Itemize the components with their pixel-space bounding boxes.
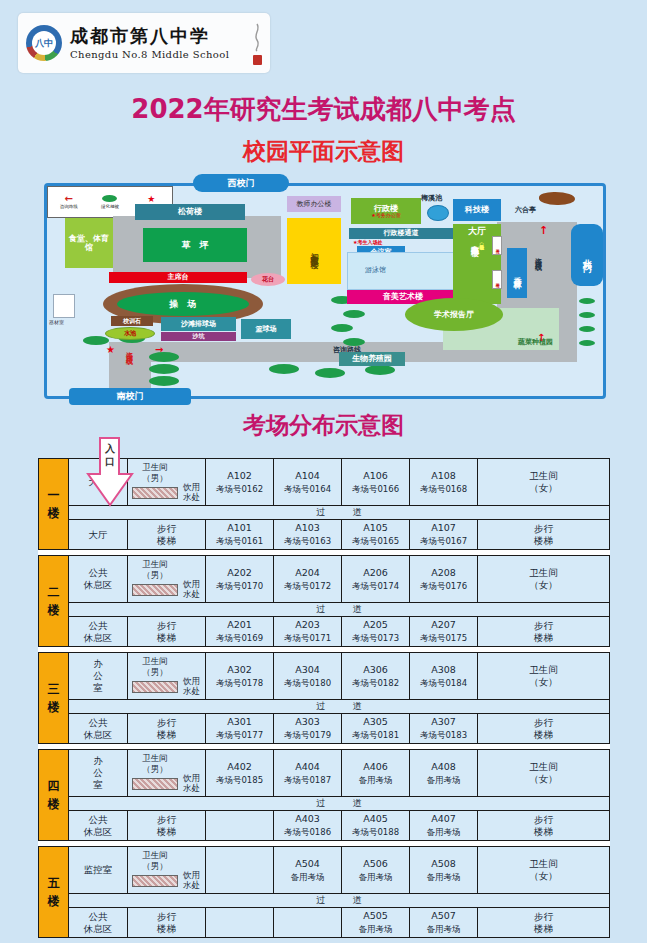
room-code: A107 <box>431 522 456 534</box>
toilet-male-hatch <box>132 584 178 596</box>
exam-room: A308考场号0184 <box>409 653 477 699</box>
tree-icon <box>315 368 345 378</box>
corridor: 过 道 <box>69 602 609 616</box>
stairs-cell: 步行 楼梯 <box>477 519 609 549</box>
room-code: A105 <box>363 522 388 534</box>
toilet-female-cell: 卫生间 （女） <box>477 847 609 893</box>
room-number: 考场号0175 <box>420 633 467 644</box>
room-number: 考场号0169 <box>216 633 263 644</box>
room-number: 备用考场 <box>427 872 461 883</box>
west-gate: 西校门 <box>193 174 289 192</box>
room-number: 考场号0173 <box>352 633 399 644</box>
facility-cell: 卫生间 （男） 饮用 水处 <box>127 459 205 505</box>
room-number: 考场号0162 <box>216 484 263 495</box>
camphor-grove: 香樟林 <box>507 248 527 298</box>
exam-room: A507备用考场 <box>409 907 477 937</box>
calligraphy-seal <box>252 22 262 65</box>
legend-route: ← 咨询路线 <box>48 187 89 217</box>
exam-room: A201考场号0169 <box>205 616 273 646</box>
tree-icon <box>579 326 595 332</box>
room-code: A206 <box>363 567 388 579</box>
swimming-pool-label: 游泳馆 <box>365 266 386 274</box>
meixi-pond-label: 梅溪池 <box>421 194 442 202</box>
room-code: A103 <box>295 522 320 534</box>
room-number: 考场号0183 <box>420 730 467 741</box>
main-title: 2022年研究生考试成都八中考点 <box>0 92 647 127</box>
exam-room: A102考场号0162 <box>205 459 273 505</box>
room-number: 备用考场 <box>359 872 393 883</box>
senior-teaching-building: 大厅 高中教学楼 （研究生考场） 考生入口 考生出口 <box>453 224 501 304</box>
exam-room: A104考场号0164 <box>273 459 341 505</box>
tree-icon <box>579 312 595 318</box>
rooms-board: 一 楼 大厅 卫生间 （男） 饮用 水处 A102考场号0162 A104考场号… <box>38 458 610 938</box>
room-number: 备用考场 <box>291 872 325 883</box>
room-code: A505 <box>363 910 388 922</box>
legend-greenery-label: 绿化植被 <box>101 204 119 209</box>
exam-room: A408备用考场 <box>409 750 477 796</box>
room-number: 考场号0182 <box>352 678 399 689</box>
school-name-cn: 成都市第八中学 <box>70 26 250 46</box>
exam-room: A407备用考场 <box>409 810 477 840</box>
tree-icon <box>149 364 179 374</box>
exam-room: A203考场号0171 <box>273 616 341 646</box>
exam-room: A402考场号0185 <box>205 750 273 796</box>
toilet-male-label: 卫生间 （男） <box>142 462 168 483</box>
toilet-male-hatch <box>132 875 178 887</box>
exam-room: A302考场号0178 <box>205 653 273 699</box>
room-number: 考场号0187 <box>284 775 331 786</box>
north-gate: 北校门 <box>571 224 603 286</box>
floor-label: 一 楼 <box>39 459 69 549</box>
room-code: A205 <box>363 619 388 631</box>
exam-room-empty <box>205 847 273 893</box>
exam-room: A107考场号0167 <box>409 519 477 549</box>
water-label: 饮用 水处 <box>183 773 200 794</box>
room-code: A203 <box>295 619 320 631</box>
room-number: 备用考场 <box>427 827 461 838</box>
tree-icon <box>149 376 179 386</box>
exam-room: A304考场号0180 <box>273 653 341 699</box>
playground: 操 场 <box>117 292 249 316</box>
stairs-cell: 步行 楼梯 <box>477 907 609 937</box>
route-arrow-icon: ← <box>64 196 72 202</box>
exam-room: A202考场号0170 <box>205 556 273 602</box>
room-number: 考场号0165 <box>352 536 399 547</box>
room-code: A104 <box>295 470 320 482</box>
exam-room: A406备用考场 <box>341 750 409 796</box>
school-name-en: Chengdu No.8 Middle School <box>70 49 250 60</box>
exam-room: A508备用考场 <box>409 847 477 893</box>
room-code: A405 <box>363 813 388 825</box>
entrance-arrow: 入 口 <box>86 437 134 507</box>
room-code: A302 <box>227 664 252 676</box>
legend-route-label: 咨询路线 <box>60 204 78 209</box>
route-arrow-up-icon: ↑ <box>539 224 548 237</box>
admin-building-note: ★考务办公室 <box>371 213 400 219</box>
basketball-court: 篮球场 <box>241 319 291 339</box>
room-code: A106 <box>363 470 388 482</box>
equipment-room-icon <box>53 294 75 318</box>
corridor: 过 道 <box>69 893 609 907</box>
south-gate: 南校门 <box>69 388 191 405</box>
exam-room: A505备用考场 <box>341 907 409 937</box>
liuhe-pavilion-label: 六合亭 <box>515 206 536 214</box>
room-number: 考场号0179 <box>284 730 331 741</box>
area-cell: 监控室 <box>69 847 127 893</box>
legend-greenery: 绿化植被 <box>89 187 130 217</box>
exam-room: A106考场号0166 <box>341 459 409 505</box>
stairs-cell: 步行 楼梯 <box>477 810 609 840</box>
stairs-cell: 步行 楼梯 <box>127 616 205 646</box>
room-code: A305 <box>363 716 388 728</box>
facility-cell: 卫生间 （男） 饮用 水处 <box>127 556 205 602</box>
toilet-male-label: 卫生间 （男） <box>142 753 168 774</box>
area-cell: 公共 休息区 <box>69 810 127 840</box>
beach-volleyball-court: 沙滩排球场 <box>161 317 236 331</box>
room-code: A207 <box>431 619 456 631</box>
exam-room: A204考场号0172 <box>273 556 341 602</box>
room-code: A102 <box>227 470 252 482</box>
star-icon: ★ <box>147 195 155 203</box>
exam-room: A506备用考场 <box>341 847 409 893</box>
equipment-room-label: 器材室 <box>49 320 64 326</box>
info-desk-star-icon: ★ <box>106 344 115 355</box>
exam-room-empty <box>205 907 273 937</box>
room-number: 备用考场 <box>359 775 393 786</box>
room-code: A303 <box>295 716 320 728</box>
route-label-south: 咨询路线 <box>125 346 133 354</box>
exam-room: A108考场号0168 <box>409 459 477 505</box>
toilet-female-cell: 卫生间 （女） <box>477 556 609 602</box>
room-code: A301 <box>227 716 252 728</box>
toilet-female-cell: 卫生间 （女） <box>477 653 609 699</box>
admin-building: 行政楼 ★考务办公室 <box>351 198 421 224</box>
room-code: A306 <box>363 664 388 676</box>
stairs-cell: 步行 楼梯 <box>127 907 205 937</box>
area-cell: 公共 休息区 <box>69 556 127 602</box>
tree-icon <box>149 352 179 362</box>
room-number: 考场号0188 <box>352 827 399 838</box>
tree-icon <box>343 338 365 346</box>
room-code: A204 <box>295 567 320 579</box>
entrance-label: 入 口 <box>86 442 134 468</box>
teacher-office-building: 教师办公楼 <box>287 196 341 212</box>
room-number: 考场号0164 <box>284 484 331 495</box>
room-code: A407 <box>431 813 456 825</box>
room-number: 考场号0167 <box>420 536 467 547</box>
exam-room: A205考场号0173 <box>341 616 409 646</box>
exam-room: A303考场号0179 <box>273 713 341 743</box>
podium: 主席台 <box>109 272 247 283</box>
floor-block-5: 五 楼 监控室 卫生间 （男） 饮用 水处 A504备用考场 A506备用考场 … <box>38 846 610 938</box>
admin-passage: 行政楼通道 <box>349 228 453 239</box>
exam-room: A405考场号0188 <box>341 810 409 840</box>
area-cell: 公共 休息区 <box>69 907 127 937</box>
room-code: A304 <box>295 664 320 676</box>
area-cell: 公共 休息区 <box>69 713 127 743</box>
room-code: A404 <box>295 761 320 773</box>
room-number: 考场号0186 <box>284 827 331 838</box>
senior-building-note: （研究生考场） <box>479 238 484 243</box>
senior-building-labels: 高中教学楼 （研究生考场） <box>470 238 484 243</box>
room-code: A308 <box>431 664 456 676</box>
tree-icon <box>331 324 353 332</box>
motto-stone: 校训石 <box>111 316 153 326</box>
room-number: 考场号0184 <box>420 678 467 689</box>
room-number: 考场号0174 <box>352 581 399 592</box>
examinee-exit-tag: 考生出口 <box>492 270 502 289</box>
tree-icon <box>579 340 595 346</box>
calligraphy-stroke-icon <box>252 22 262 52</box>
floor-block-3: 三 楼 办 公 室 卫生间 （男） 饮用 水处 A302考场号0178 A304… <box>38 652 610 744</box>
water-label: 饮用 水处 <box>183 579 200 600</box>
corridor: 过 道 <box>69 699 609 713</box>
emblem-center: 八中 <box>32 31 56 55</box>
area-cell: 大厅 <box>69 519 127 549</box>
exam-room: A208考场号0176 <box>409 556 477 602</box>
red-seal-icon <box>253 55 262 65</box>
senior-building-label: 高中教学楼 <box>470 238 479 243</box>
tree-icon <box>579 298 595 304</box>
pond: 水池 <box>105 327 155 340</box>
room-code: A504 <box>295 858 320 870</box>
toilet-female-cell: 卫生间 （女） <box>477 750 609 796</box>
toilet-male-label: 卫生间 （男） <box>142 656 168 677</box>
room-code: A506 <box>363 858 388 870</box>
facility-cell: 卫生间 （男） 饮用 水处 <box>127 847 205 893</box>
room-number: 考场号0181 <box>352 730 399 741</box>
campus-map-title: 校园平面示意图 <box>0 136 647 167</box>
campus-map: 蔬菜种植园 西校门 北校门 南校门 教师办公楼 松荷楼 食堂、体育馆 草 坪 初… <box>44 183 606 399</box>
floor-label: 五 楼 <box>39 847 69 937</box>
exam-room-empty <box>273 907 341 937</box>
room-number: 考场号0176 <box>420 581 467 592</box>
floor-label: 四 楼 <box>39 750 69 840</box>
toilet-male-hatch <box>132 778 178 790</box>
exam-room: A301考场号0177 <box>205 713 273 743</box>
toilet-male-hatch <box>132 487 178 499</box>
tree-icon <box>343 310 365 318</box>
room-number: 备用考场 <box>427 924 461 935</box>
facility-cell: 卫生间 （男） 饮用 水处 <box>127 653 205 699</box>
toilet-male-label: 卫生间 （男） <box>142 850 168 871</box>
lecture-hall: 学术报告厅 <box>405 298 503 331</box>
room-number: 考场号0170 <box>216 581 263 592</box>
room-number: 备用考场 <box>427 775 461 786</box>
stairs-cell: 步行 楼梯 <box>127 713 205 743</box>
stairs-cell: 步行 楼梯 <box>477 616 609 646</box>
hall-label: 大厅 <box>468 226 486 236</box>
room-number: 考场号0180 <box>284 678 331 689</box>
floor-label: 二 楼 <box>39 556 69 646</box>
toilet-female-cell: 卫生间 （女） <box>477 459 609 505</box>
stairs-cell: 步行 楼梯 <box>127 810 205 840</box>
area-cell: 办 公 室 <box>69 653 127 699</box>
room-code: A307 <box>431 716 456 728</box>
tree-icon <box>365 365 395 375</box>
sand-pit: 沙坑 <box>161 332 236 341</box>
room-number: 考场号0177 <box>216 730 263 741</box>
stairs-cell: 步行 楼梯 <box>477 713 609 743</box>
room-number: 考场号0166 <box>352 484 399 495</box>
exam-room: A206考场号0174 <box>341 556 409 602</box>
room-code: A101 <box>227 522 252 534</box>
corridor: 过 道 <box>69 505 609 519</box>
area-cell: 办 公 室 <box>69 750 127 796</box>
room-code: A202 <box>227 567 252 579</box>
meixi-pond-icon <box>427 205 449 221</box>
bio-garden: 生物养殖园 <box>339 352 405 366</box>
room-number: 考场号0161 <box>216 536 263 547</box>
exam-room: A504备用考场 <box>273 847 341 893</box>
room-code: A508 <box>431 858 456 870</box>
poster: { "header": { "school_cn": "成都市第八中学", "s… <box>0 0 647 943</box>
flower-bed: 花台 <box>251 273 285 286</box>
room-code: A406 <box>363 761 388 773</box>
science-tech-building: 科技楼 <box>453 199 501 221</box>
room-number: 考场号0171 <box>284 633 331 644</box>
room-code: A507 <box>431 910 456 922</box>
room-number: 考场号0168 <box>420 484 467 495</box>
stairs-cell: 步行 楼梯 <box>127 519 205 549</box>
route-arrow-right-icon: → <box>155 344 163 355</box>
exam-room: A207考场号0175 <box>409 616 477 646</box>
room-code: A403 <box>295 813 320 825</box>
exam-room: A306考场号0182 <box>341 653 409 699</box>
facility-cell: 卫生间 （男） 饮用 水处 <box>127 750 205 796</box>
water-label: 饮用 水处 <box>183 482 200 503</box>
junior-teaching-building: 初中教学楼 <box>287 218 341 284</box>
floor-block-2: 二 楼 公共 休息区 卫生间 （男） 饮用 水处 A202考场号0170 A20… <box>38 555 610 647</box>
admin-passage-note: ★考生入场处 <box>353 240 382 246</box>
exam-room: A307考场号0183 <box>409 713 477 743</box>
room-number: 备用考场 <box>359 924 393 935</box>
area-cell: 公共 休息区 <box>69 616 127 646</box>
water-label: 饮用 水处 <box>183 870 200 891</box>
exam-room: A305考场号0181 <box>341 713 409 743</box>
exam-room: A103考场号0163 <box>273 519 341 549</box>
room-number: 考场号0178 <box>216 678 263 689</box>
water-label: 饮用 水处 <box>183 676 200 697</box>
route-arrow-corner-icon: ↑ <box>537 332 545 343</box>
logo-text: 成都市第八中学 Chengdu No.8 Middle School <box>70 26 250 60</box>
room-code: A108 <box>431 470 456 482</box>
room-number: 考场号0172 <box>284 581 331 592</box>
swimming-pool <box>347 252 459 290</box>
toilet-male-label: 卫生间 （男） <box>142 559 168 580</box>
exam-room: A101考场号0161 <box>205 519 273 549</box>
room-number: 考场号0185 <box>216 775 263 786</box>
route-label-right: 咨询路线 <box>534 252 542 260</box>
toilet-male-hatch <box>132 681 178 693</box>
pavilion-icon <box>539 192 575 205</box>
exam-room-empty <box>205 810 273 840</box>
songhe-building: 松荷楼 <box>135 204 245 220</box>
floor-label: 三 楼 <box>39 653 69 743</box>
room-code: A201 <box>227 619 252 631</box>
lawn: 草 坪 <box>143 228 247 262</box>
room-code: A402 <box>227 761 252 773</box>
room-code: A208 <box>431 567 456 579</box>
exam-room: A404考场号0187 <box>273 750 341 796</box>
floor-block-4: 四 楼 办 公 室 卫生间 （男） 饮用 水处 A402考场号0185 A404… <box>38 749 610 841</box>
school-logo: 八中 成都市第八中学 Chengdu No.8 Middle School <box>18 13 270 73</box>
room-code: A408 <box>431 761 456 773</box>
tree-icon <box>269 364 299 374</box>
examinee-entrance-tag: 考生入口 <box>492 236 502 255</box>
corridor: 过 道 <box>69 796 609 810</box>
exam-room: A105考场号0165 <box>341 519 409 549</box>
room-number: 考场号0163 <box>284 536 331 547</box>
exam-room: A403考场号0186 <box>273 810 341 840</box>
canteen-gym-building: 食堂、体育馆 <box>65 218 113 268</box>
greenery-icon <box>102 195 117 202</box>
school-emblem-icon: 八中 <box>26 25 62 61</box>
